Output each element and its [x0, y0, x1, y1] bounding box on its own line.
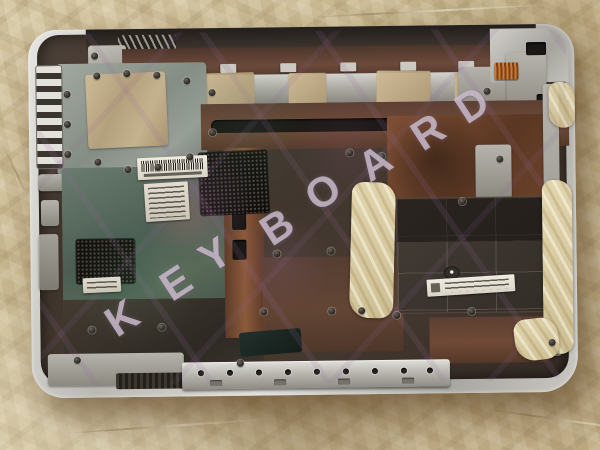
barcode-label: [137, 155, 208, 180]
metal-tab: [280, 63, 296, 72]
screw: [123, 70, 130, 77]
paper-crease: [481, 407, 600, 434]
part-info-label: [144, 181, 190, 222]
rail-screw-hole: [198, 370, 204, 376]
rail-notch: [338, 378, 350, 384]
screw: [91, 52, 98, 59]
mesh-info-label: [83, 277, 122, 294]
screw: [468, 308, 475, 315]
screw: [154, 164, 161, 171]
screw: [209, 89, 216, 96]
screw: [186, 153, 193, 160]
label-text-lines: [148, 186, 186, 219]
screw: [183, 77, 190, 84]
label-text-lines: [87, 281, 117, 290]
screw: [88, 327, 95, 334]
foil-patch: [85, 71, 168, 149]
rail-notch: [210, 380, 222, 386]
metal-tab: [220, 64, 236, 73]
screw: [484, 88, 491, 95]
rail-screw-hole: [227, 370, 233, 376]
dark-component: [239, 328, 303, 357]
rear-port-opening: [526, 42, 546, 55]
rail-screw-hole: [285, 369, 291, 375]
screw: [124, 166, 131, 173]
vent-slot: [232, 240, 246, 260]
screw: [459, 198, 466, 205]
screw: [209, 129, 216, 136]
screw: [358, 307, 365, 314]
rail-screw-hole: [427, 367, 433, 373]
side-port-opening: [41, 200, 59, 226]
label-text-lines: [445, 279, 510, 293]
rail-screw-hole: [343, 368, 349, 374]
screw: [93, 72, 100, 79]
screw: [496, 156, 503, 163]
textured-strip: [116, 372, 184, 389]
speaker-mesh: [198, 150, 269, 215]
rail-notch: [274, 379, 286, 385]
aluminum-tape-bar: [188, 72, 490, 105]
label-text-line: [144, 171, 202, 177]
wax-paper-patch: [548, 82, 575, 128]
screw: [64, 151, 71, 158]
support-bracket: [475, 144, 512, 198]
label-logo-mark: [431, 283, 441, 293]
rail-screw-hole: [256, 370, 262, 376]
screw: [393, 312, 400, 319]
screw: [549, 339, 556, 346]
paper-crease: [300, 3, 560, 19]
wax-paper-patch: [349, 182, 396, 319]
screw: [237, 360, 244, 367]
foil-tape-piece: [376, 71, 430, 104]
metal-tab: [340, 62, 356, 71]
paper-crease: [60, 417, 280, 434]
side-bracket: [38, 234, 59, 290]
screw: [64, 91, 71, 98]
laptop-bottom-case: [28, 24, 578, 399]
screw: [328, 308, 335, 315]
power-coil: [494, 62, 518, 79]
foil-tape-piece: [288, 73, 326, 104]
bottom-rail: [182, 359, 450, 389]
rail-screw-hole: [372, 368, 378, 374]
screw: [94, 158, 101, 165]
battery-bay: [396, 196, 547, 314]
screw: [260, 308, 267, 315]
photo-scene: K E Y B O A R D: [0, 0, 600, 450]
rail-screw-hole: [314, 369, 320, 375]
screw: [64, 121, 71, 128]
screw: [74, 357, 81, 364]
screw: [153, 72, 160, 79]
screw: [158, 324, 165, 331]
screw: [327, 248, 334, 255]
metal-tab: [400, 62, 416, 71]
side-vent-grille: [35, 65, 63, 169]
barcode-stripes: [141, 158, 203, 172]
rail-screw-hole: [401, 368, 407, 374]
rail-notch: [402, 378, 414, 384]
